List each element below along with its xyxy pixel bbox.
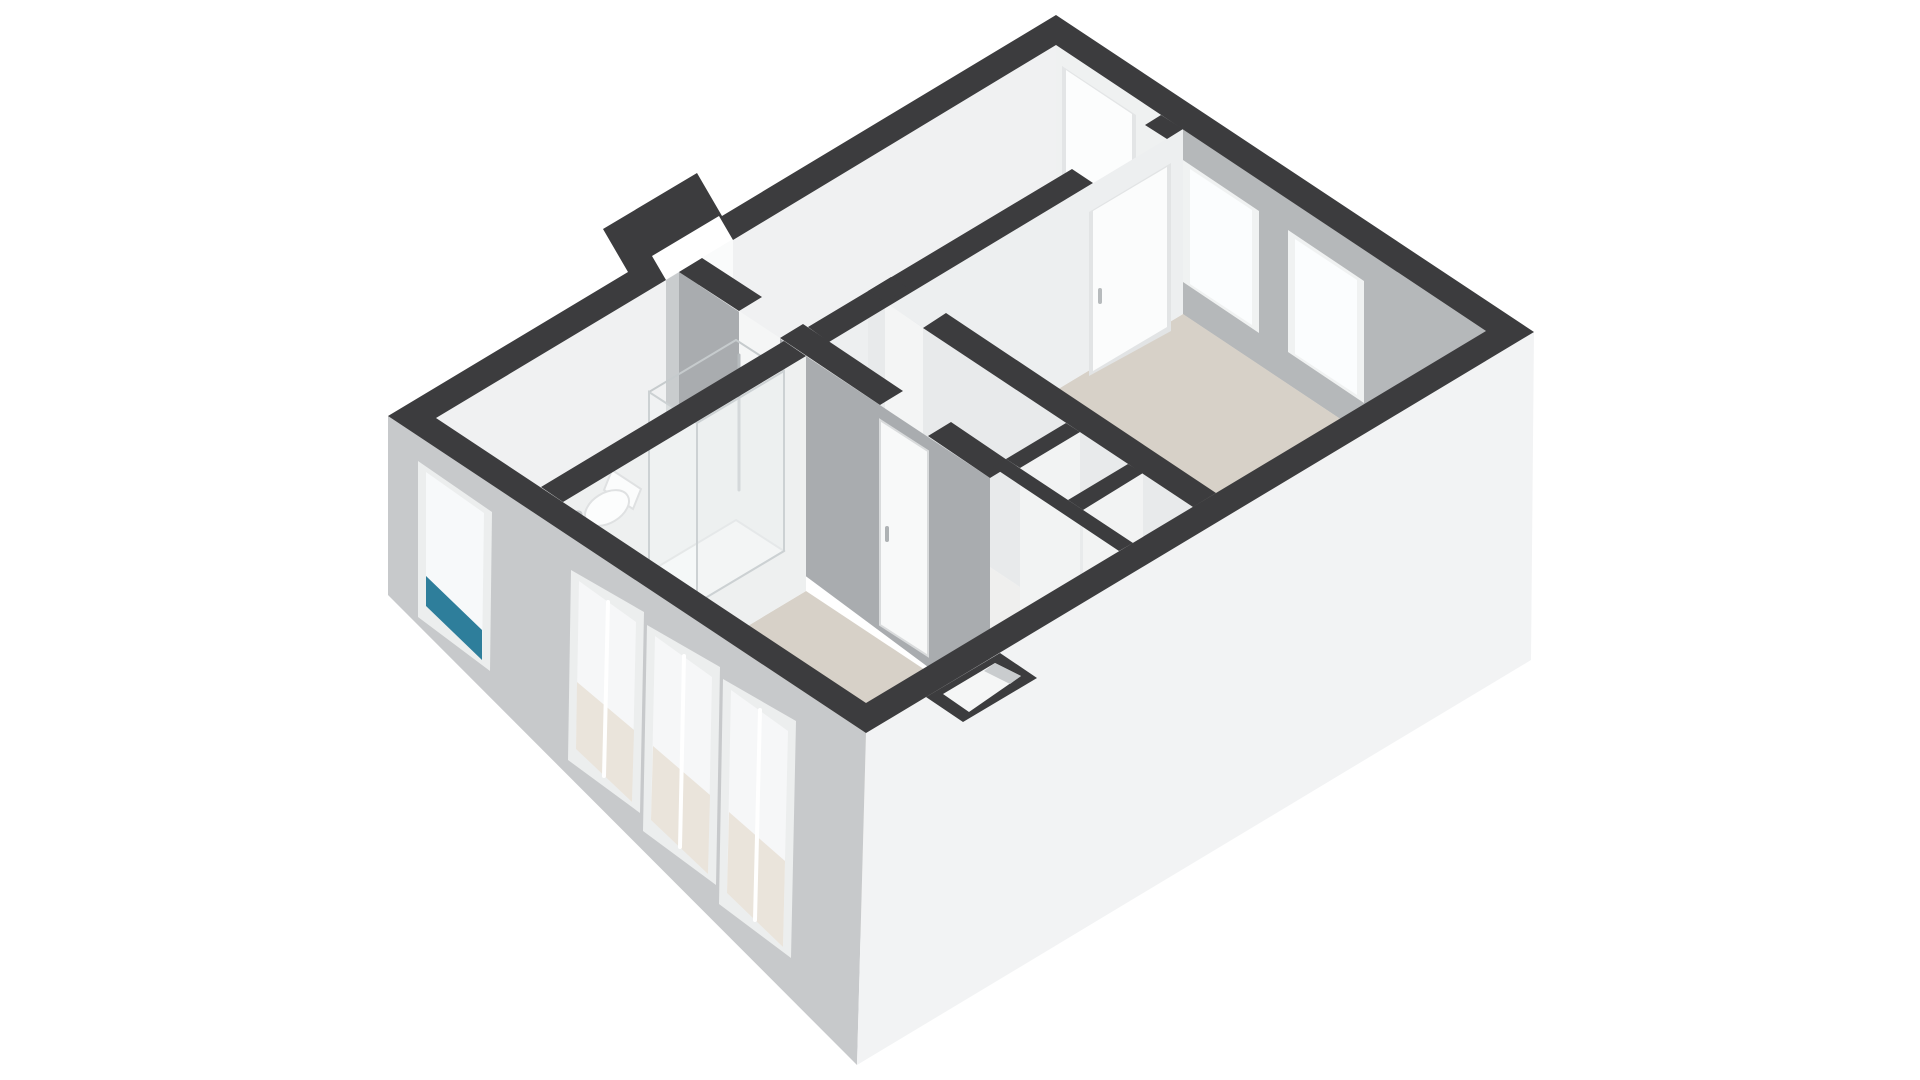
floorplan-3d-render bbox=[0, 0, 1920, 1080]
floorplan-stage bbox=[0, 0, 1920, 1080]
